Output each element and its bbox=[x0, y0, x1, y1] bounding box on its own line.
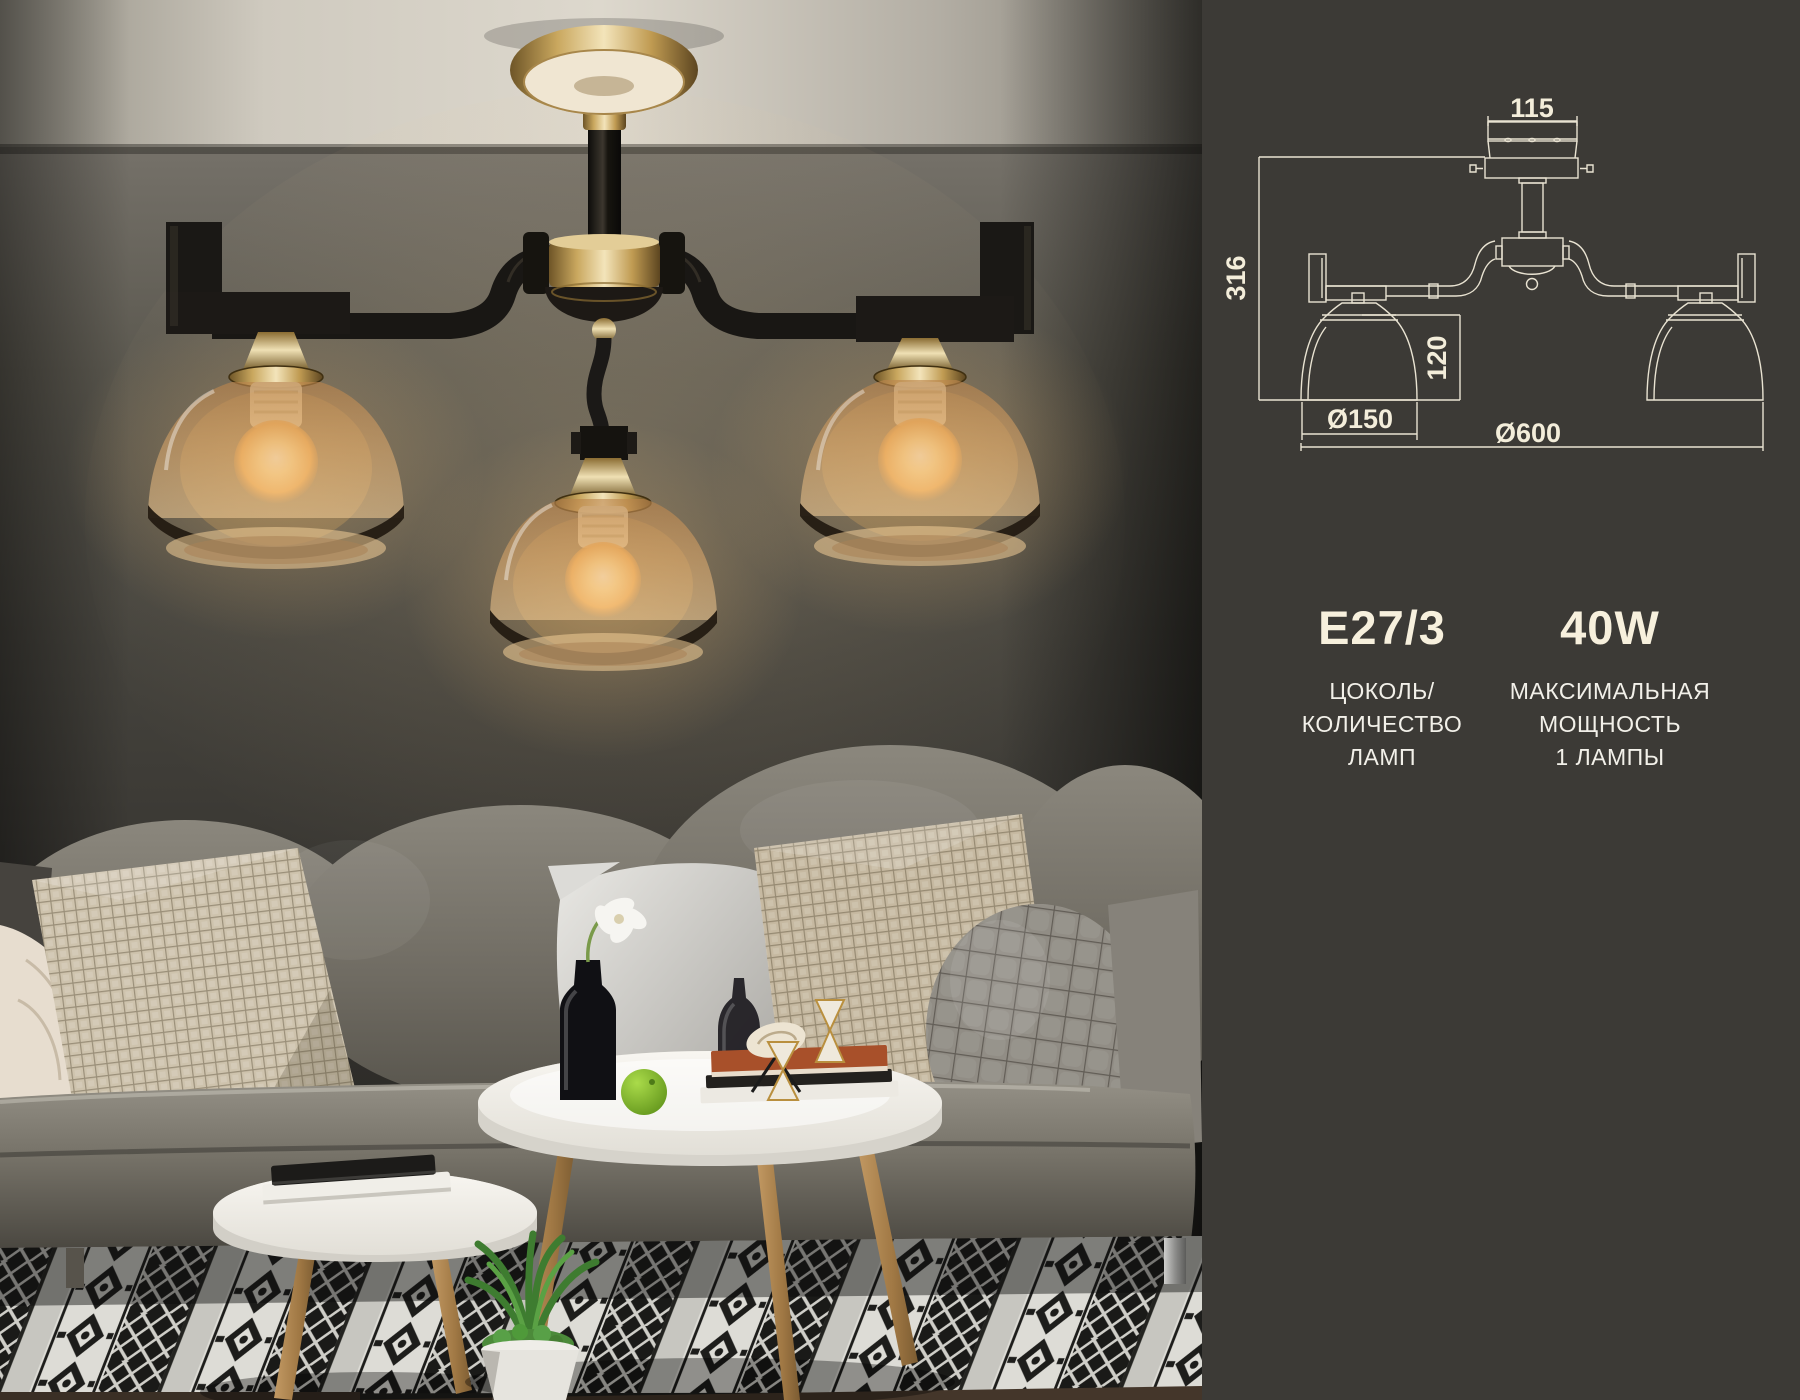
spec-socket-caption-line1: ЦОКОЛЬ/ bbox=[1262, 675, 1502, 708]
spec-socket-value: E27/3 bbox=[1262, 600, 1502, 655]
spec-panel: 115 316 120 Ø150 Ø600 E27/3 ЦОКОЛЬ/ КОЛИ… bbox=[1202, 0, 1800, 1400]
dim-label-316: 316 bbox=[1221, 255, 1251, 300]
dim-label-115: 115 bbox=[1510, 93, 1554, 123]
lime-fruit bbox=[621, 1069, 667, 1115]
sofa-leg bbox=[1164, 1238, 1186, 1284]
product-photo bbox=[0, 0, 1202, 1400]
dim-label-600: Ø600 bbox=[1495, 418, 1561, 448]
books-big-table bbox=[699, 1045, 899, 1104]
spec-socket-caption-line2: КОЛИЧЕСТВО bbox=[1262, 708, 1502, 741]
sofa-leg-left bbox=[66, 1248, 84, 1288]
spec-socket-caption-line3: ЛАМП bbox=[1262, 741, 1502, 774]
dim-label-150: Ø150 bbox=[1327, 404, 1393, 434]
living-room-scene bbox=[0, 0, 1202, 1400]
spec-power-value: 40W bbox=[1490, 600, 1730, 655]
spec-power: 40W МАКСИМАЛЬНАЯ МОЩНОСТЬ 1 ЛАМПЫ bbox=[1490, 600, 1730, 774]
product-card: 115 316 120 Ø150 Ø600 E27/3 ЦОКОЛЬ/ КОЛИ… bbox=[0, 0, 1800, 1400]
spec-socket: E27/3 ЦОКОЛЬ/ КОЛИЧЕСТВО ЛАМП bbox=[1262, 600, 1502, 774]
spec-power-caption-line3: 1 ЛАМПЫ bbox=[1490, 741, 1730, 774]
spec-power-caption-line2: МОЩНОСТЬ bbox=[1490, 708, 1730, 741]
dim-label-120: 120 bbox=[1422, 335, 1452, 380]
spec-power-caption-line1: МАКСИМАЛЬНАЯ bbox=[1490, 675, 1730, 708]
